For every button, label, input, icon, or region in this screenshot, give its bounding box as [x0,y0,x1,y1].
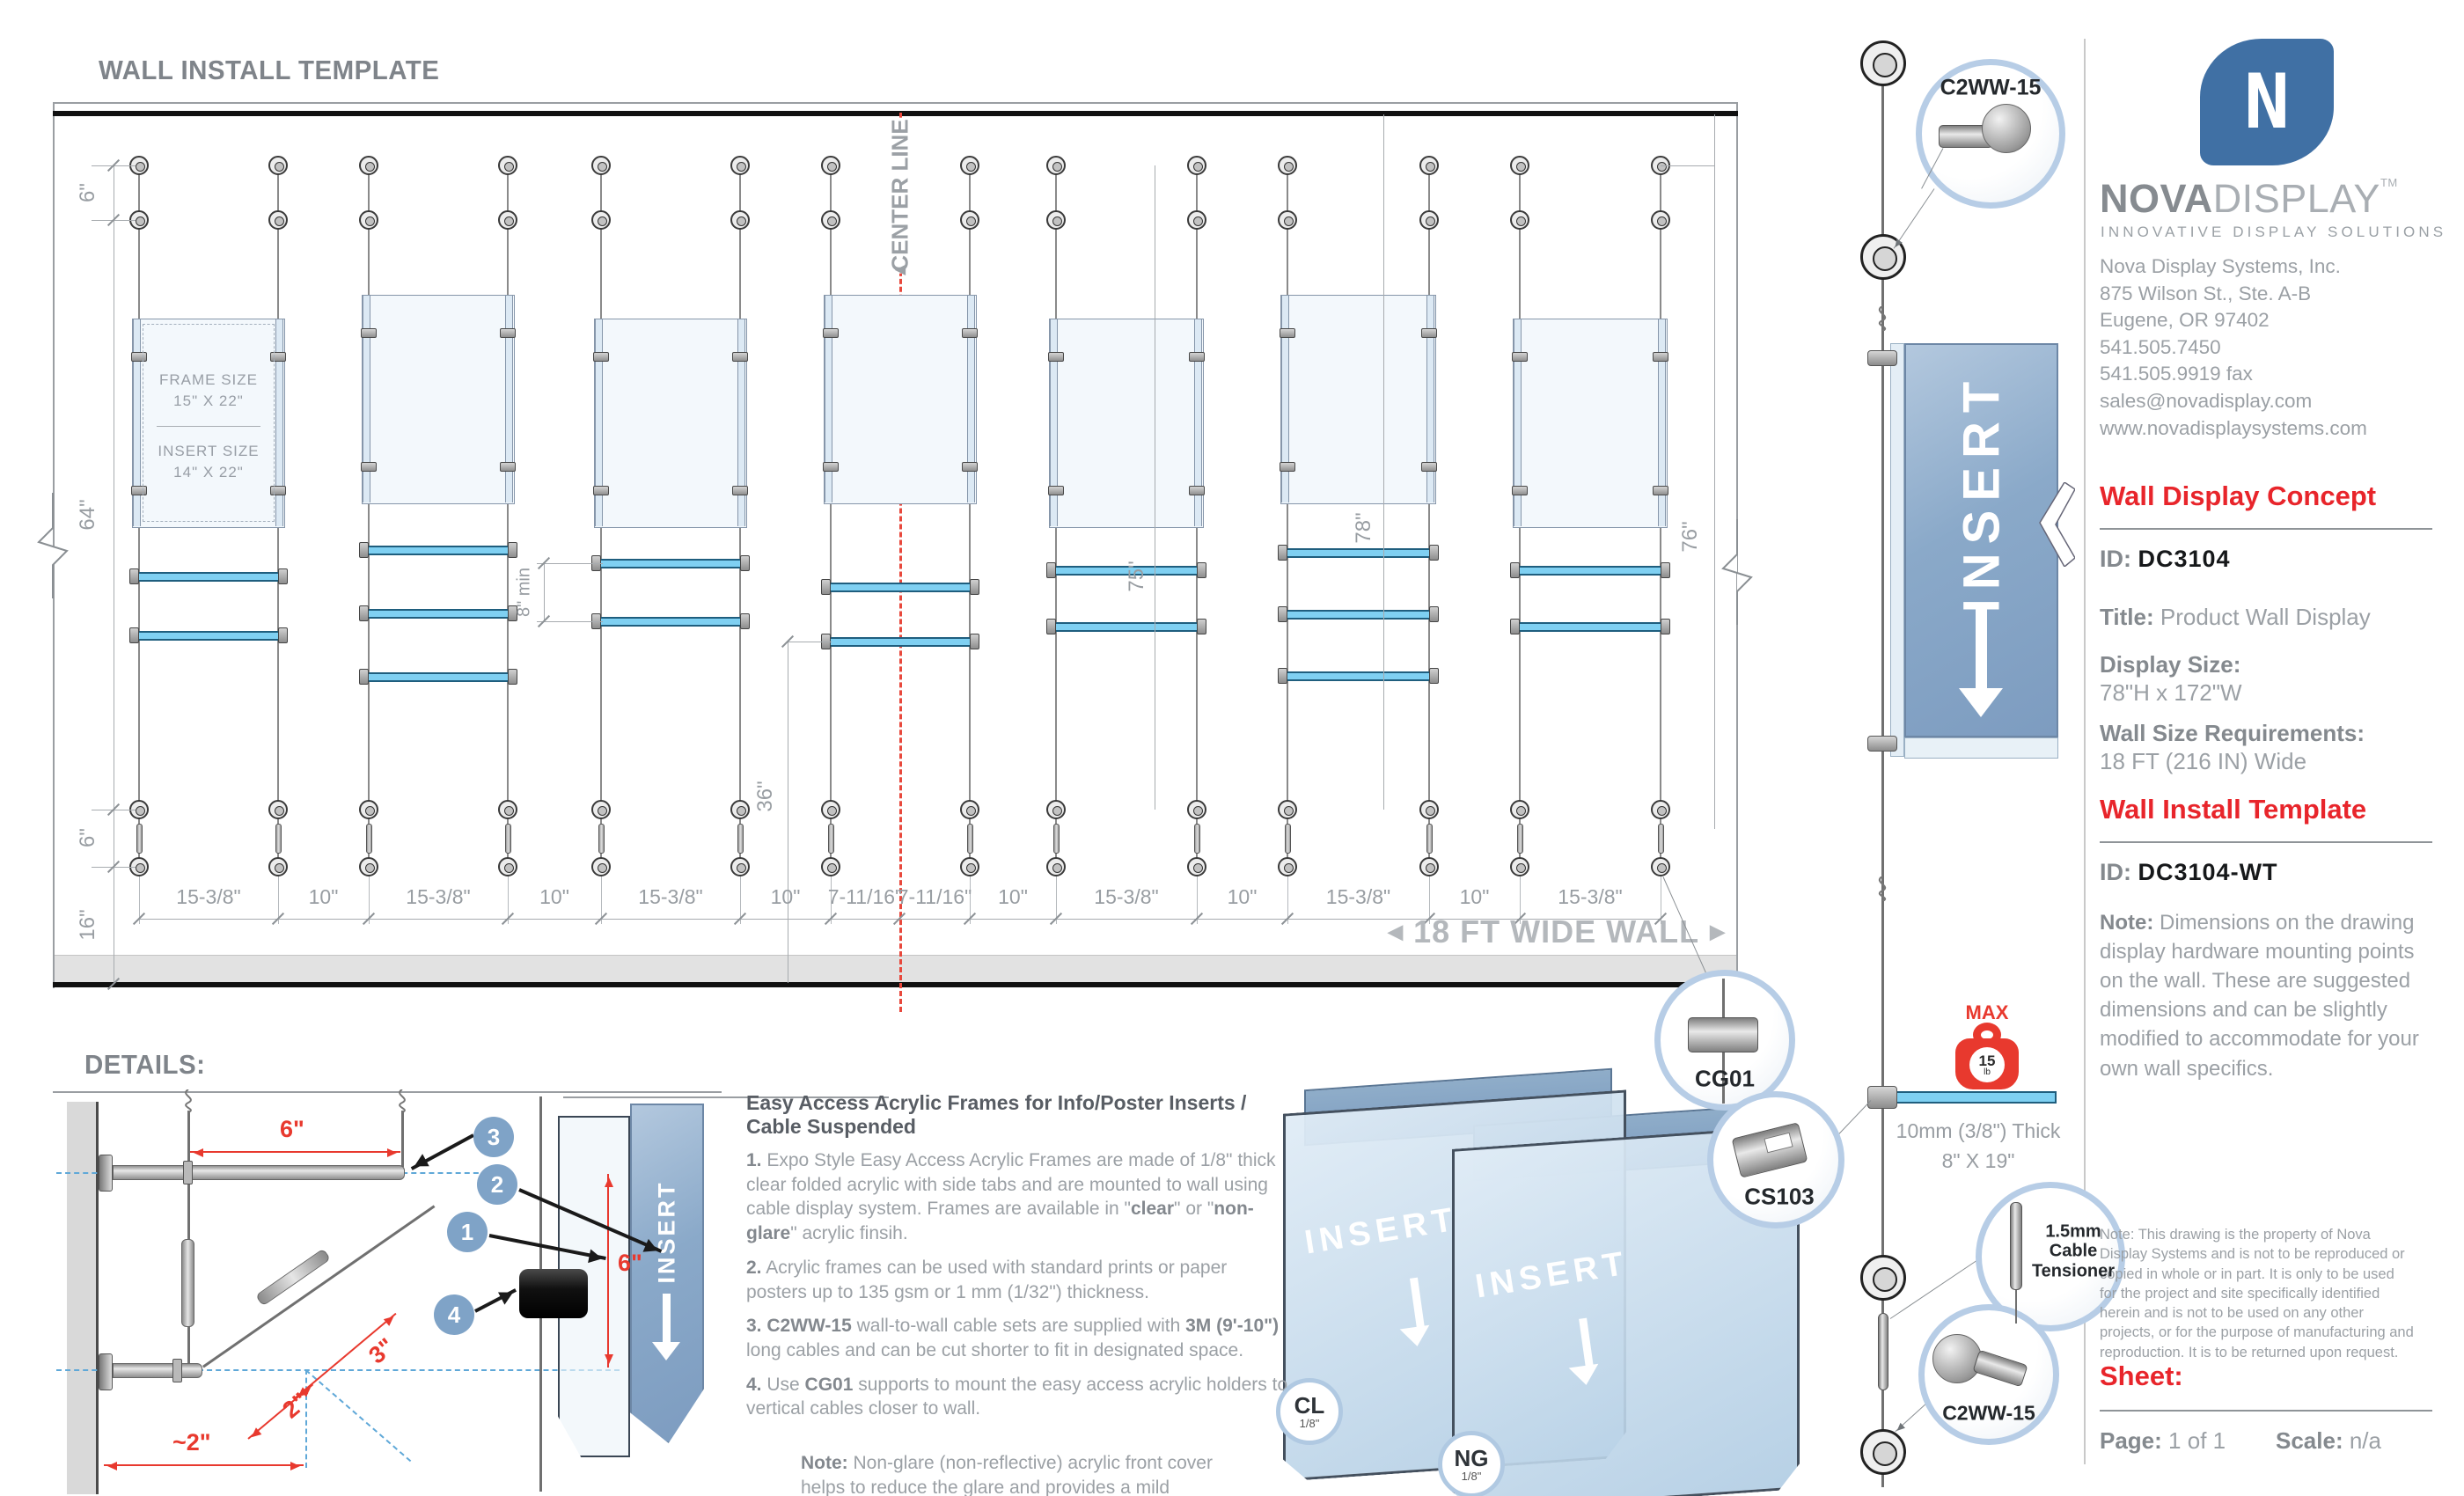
mount-anchor [821,210,840,230]
dim-connector [1661,165,1714,166]
mount-anchor [1187,210,1206,230]
break-mark-icon [37,493,69,598]
cable-tensioner-rod [828,824,834,854]
hanging-cable [368,165,370,869]
mount-anchor [960,800,979,819]
display-shelf [1516,566,1664,576]
shelf-end-cap [278,627,288,643]
shelf-end-cap [1278,668,1287,684]
dim-label: 8" min [515,568,535,617]
brand-name: NOVADISPLAYTM [2100,176,2398,222]
top-wall-stud [113,1165,405,1180]
note-item: 4. Use CG01 supports to mount the easy a… [746,1373,1292,1421]
bottom-dim-label: 10" [309,885,339,909]
display-frame [1049,319,1204,528]
down-arrow-icon [663,1294,671,1342]
shelf-end-cap [1429,545,1439,561]
bottom-dim-label: 15-3/8" [1326,885,1390,909]
mount-anchor [1187,156,1206,175]
cable-tensioner-rod [1426,824,1433,854]
wall-stud-flange [99,1353,113,1390]
frame-clip [1048,352,1064,362]
frame-clip [823,328,839,338]
mount-anchor [498,800,517,819]
mount-anchor [1046,210,1066,230]
page-indicator: Page: 1 of 1 [2100,1427,2226,1455]
dim-label: 16" [76,909,100,940]
display-shelf [598,559,744,568]
display-shelf [1516,622,1664,632]
panel-break-icon [2038,482,2075,567]
center-line-left-icon: ◀ [895,260,906,278]
bottom-dim-label: 10" [998,885,1028,909]
display-shelf [827,637,973,647]
mount-anchor [359,156,378,175]
dim-arrow [607,1174,609,1368]
shelf-end-cap [1510,562,1520,578]
display-shelf [827,583,973,592]
bottom-dim-label: 10" [1460,885,1490,909]
shelf-size-label: 8" X 19" [1942,1149,2015,1173]
hanging-cable [969,165,971,869]
dim-line [1155,165,1155,810]
cg01-hardware [1688,1017,1758,1052]
dim-extension [788,642,832,642]
shelf-end-cap [1278,545,1287,561]
shelf-end-cap [740,613,750,629]
cable-tensioner-rod [1285,824,1291,854]
dim-label: 78" [1352,512,1376,543]
mount-anchor [1046,156,1066,175]
c2ww15-flange [1982,104,2031,153]
callout-badge-1: 1 [447,1212,488,1252]
mount-anchor [730,857,750,876]
shelf-end-cap [359,669,369,685]
cable-tensioner-rod [1194,824,1200,854]
break-mark-icon [393,1089,411,1112]
dim-label: 64" [76,499,100,530]
shelf-thickness-label: 10mm (3/8") Thick [1896,1119,2061,1143]
shelf-end-cap [1661,619,1670,634]
wall-stud-flange [99,1155,113,1192]
logo-n-icon: N [2244,58,2290,146]
shelf-end-cap [129,568,139,584]
note-item: 1. Expo Style Easy Access Acrylic Frames… [746,1148,1292,1246]
wall-req-value: 18 FT (216 IN) Wide [2100,748,2306,775]
display-shelf [365,546,511,555]
shelf-end-cap [1046,619,1056,634]
shelf-end-cap [359,542,369,558]
callout-badge-3: 3 [473,1117,514,1157]
heading-rule [2100,528,2432,530]
dim-label: 6" [618,1250,642,1277]
mount-anchor [1278,156,1297,175]
mount-anchor [1419,156,1439,175]
cable-tensioner-rod [136,824,143,854]
note-item: 2. Acrylic frames can be used with stand… [746,1256,1292,1304]
frame-clip [593,486,609,495]
mount-anchor [359,800,378,819]
mount-anchor [498,210,517,230]
mount-anchor [591,800,611,819]
mount-anchor [1419,857,1439,876]
mount-anchor [1651,210,1670,230]
dim-line [1714,114,1715,829]
vertical-cable [401,1111,404,1167]
mount-anchor [730,800,750,819]
c2ww15-label: C2WW-15 [1940,76,2042,101]
insert-label: INSERT [654,1180,681,1283]
frame-clip [1189,486,1205,495]
nonglare-finish-badge: NG 1/8" [1438,1431,1505,1496]
bottom-dim-label: 15-3/8" [1558,885,1622,909]
mount-anchor [498,857,517,876]
dim-arrow [190,1151,400,1153]
frame-clip [1421,328,1437,338]
cable-clip [1867,350,1897,366]
brand-tagline: INNOVATIVE DISPLAY SOLUTIONS [2101,224,2446,241]
frame-size-label: FRAME SIZE15" X 22"INSERT SIZE14" X 22" [143,368,275,485]
frame-clip [1421,462,1437,472]
callout-badge-2: 2 [477,1164,517,1205]
display-size-value: 78"H x 172"W [2100,679,2242,707]
dim-extension [537,563,603,564]
panel-bottom-strip [1904,737,2058,759]
stud-collar [172,1359,182,1382]
hardware-cable [2015,1290,2017,1324]
dim-label: 76" [1678,521,1703,552]
shelf-end-cap [970,634,979,649]
shelf-end-cap [1197,619,1206,634]
bottom-dim-label: 15-3/8" [1094,885,1158,909]
concept-title: Title: Product Wall Display [2100,604,2371,631]
concept-id: ID: DC3104 [2100,546,2231,573]
shelf-end-cap [821,579,831,595]
frame-clip [1280,462,1295,472]
down-arrow-icon [1976,609,1987,690]
mount-anchor [268,800,288,819]
frame-clip [823,462,839,472]
frame-clip [1048,486,1064,495]
frame-clip [1512,352,1528,362]
right-arrow-icon: ▶ [1710,920,1725,943]
page-title: WALL INSTALL TEMPLATE [99,55,439,86]
dim-label: 6" [76,828,100,847]
shelf-end-cap [129,627,139,643]
frame-clip [962,462,978,472]
max-weight-label: MAX [1966,1001,2009,1024]
display-frame [824,295,977,504]
bottom-dim-label: 15-3/8" [406,885,470,909]
mount-anchor [1419,210,1439,230]
mount-anchor [359,210,378,230]
break-mark-icon [1873,876,1892,901]
dim-line [1383,114,1384,810]
wall-req-label: Wall Size Requirements: [2100,720,2365,747]
mount-anchor [960,210,979,230]
dim-arrow [104,1464,304,1466]
concept-heading: Wall Display Concept [2100,480,2376,512]
display-frame [1280,295,1436,504]
mount-anchor [359,857,378,876]
dim-label: 6" [76,183,100,202]
display-frame [1513,319,1668,528]
center-line-label: CENTER LINE [884,117,918,273]
left-arrow-icon: ◀ [1388,920,1403,943]
heading-rule [2100,1410,2432,1412]
scale-indicator: Scale: n/a [2276,1427,2381,1455]
mount-anchor [1278,210,1297,230]
nova-display-logo: N [2200,39,2334,165]
wall-anchor [1860,1255,1906,1301]
break-mark-icon [1873,306,1892,331]
tensioner-rod [1878,1313,1888,1390]
frame-clip [1653,352,1668,362]
shelf-end-cap [1429,668,1439,684]
hanging-cable [507,165,509,869]
cg01-support-cylinder [519,1269,588,1318]
install-note: Note: Dimensions on the drawing display … [2100,908,2438,1083]
acrylic-holder-rail [1890,343,1904,757]
bottom-dim-label: 15-3/8" [638,885,702,909]
weight-value-disc: 15 lb [1969,1047,2005,1082]
shelf-end-cap [740,555,750,571]
mount-anchor [730,210,750,230]
mount-anchor [821,156,840,175]
break-mark-icon [1721,519,1753,625]
shelf-end-cap [970,579,979,595]
display-shelf [1284,610,1433,620]
frame-clip [732,486,748,495]
frame-clip [593,352,609,362]
shelf-end-cap [1429,606,1439,622]
hanging-cable [1287,165,1288,869]
shelf-end-cap [1278,606,1287,622]
shelf-end-cap [278,568,288,584]
display-shelf [1052,622,1200,632]
insert-label: INSERT [1953,373,2012,613]
sheet-heading: Sheet: [2100,1360,2183,1392]
shelf-end-cap [1197,562,1206,578]
mount-anchor [498,156,517,175]
display-shelf [1284,671,1433,681]
install-heading: Wall Install Template [2100,794,2366,825]
dim-line [114,165,114,984]
cable-tensioner-rod [505,824,511,854]
mount-anchor [1651,800,1670,819]
frame-clip [361,462,377,472]
stud-collar [183,1161,193,1184]
shelf-end-cap [508,542,517,558]
cable-tensioner-rod [967,824,973,854]
cable-tensioner-rod [1517,824,1523,854]
mount-anchor [1510,800,1529,819]
down-arrow-icon [652,1342,680,1360]
bottom-dim-label: 7-11/16" [828,885,902,909]
shelf-end-cap [359,605,369,621]
frame-clip [1189,352,1205,362]
frame-clip [732,352,748,362]
mount-anchor [1651,857,1670,876]
display-shelf [365,609,511,619]
shelf-end-cap [1046,562,1056,578]
note-footnote: Note: Non-glare (non-reflective) acrylic… [746,1451,1239,1496]
frame-clip [500,328,516,338]
bottom-dim-label: 10" [1228,885,1258,909]
dim-extension [537,621,603,622]
c2ww15-label: C2WW-15 [1942,1402,2035,1426]
hanging-cable [1428,165,1430,869]
dim-line [788,642,788,983]
mount-anchor [1510,156,1529,175]
dim-label: 75" [1125,561,1149,591]
display-frame [594,319,747,528]
mount-anchor [1510,210,1529,230]
hanging-cable [830,165,832,869]
cs103-label: CS103 [1744,1184,1815,1211]
mount-anchor [1187,857,1206,876]
clear-finish-badge: CL 1/8" [1276,1378,1343,1445]
mount-anchor [960,857,979,876]
bottom-dim-label: 15-3/8" [176,885,240,909]
c2ww15-flange [1932,1334,1982,1383]
mount-anchor [1187,800,1206,819]
product-notes: Easy Access Acrylic Frames for Info/Post… [746,1091,1292,1496]
wide-wall-label: ◀ 18 FT WIDE WALL ▶ [1373,913,1725,950]
mount-anchor [1278,857,1297,876]
mount-anchor [268,210,288,230]
mount-anchor [821,800,840,819]
frame-clip [1280,328,1295,338]
shelf-clip [1867,1086,1897,1109]
frame-clip [1512,486,1528,495]
wall-anchor [1860,40,1906,86]
tensioner-hardware [2010,1202,2022,1290]
display-shelf [598,617,744,627]
dim-label: 6" [280,1116,304,1143]
glass-shelf [1894,1091,2057,1104]
mount-anchor [591,210,611,230]
shelf-end-cap [1661,562,1670,578]
bottom-dim-label: 10" [539,885,569,909]
display-shelf [365,672,511,682]
wall-anchor [1860,1429,1906,1475]
cable-tensioner-rod [598,824,605,854]
frame-clip [500,462,516,472]
down-arrow-icon [1569,1364,1602,1388]
mount-anchor [1046,857,1066,876]
mount-anchor [591,857,611,876]
cable-tensioner-rod [737,824,744,854]
wall-install-template-sheet: WALL INSTALL TEMPLATE ◀ 18 FT WIDE WALL … [0,0,2464,1496]
mount-anchor [1278,800,1297,819]
dim-label: ~2" [172,1429,211,1456]
bottom-dim-label: 10" [771,885,801,909]
mount-anchor [1046,800,1066,819]
dim-label: 36" [753,781,778,811]
legal-fine-print: Note: This drawing is the property of No… [2100,1225,2415,1362]
cable-tensioner-rod [1053,824,1060,854]
cable-turnbuckle [181,1239,194,1327]
dim-line [544,563,545,622]
details-title: DETAILS: [84,1049,205,1081]
company-address: Nova Display Systems, Inc. 875 Wilson St… [2100,253,2367,442]
frame-clip [962,328,978,338]
cable-tensioner-rod [366,824,372,854]
display-shelf [136,631,282,641]
cable-clip [1867,736,1897,752]
mount-anchor [268,857,288,876]
callout-badge-4: 4 [434,1294,474,1335]
heading-rule [2100,841,2432,843]
mount-anchor [821,857,840,876]
cable-tensioner-rod [1658,824,1664,854]
frame-clip [361,328,377,338]
mount-anchor [268,156,288,175]
shelf-end-cap [1510,619,1520,634]
mount-anchor [1419,800,1439,819]
mount-anchor [591,156,611,175]
bottom-wall-stud [113,1363,202,1378]
down-arrow-icon [1959,688,2003,717]
cg01-label: CG01 [1695,1066,1755,1093]
tensioner-label: 1.5mm Cable Tensioner [2032,1221,2116,1280]
shelf-end-cap [508,669,517,685]
bottom-dim-label: 7-11/16" [898,885,972,909]
display-frame [362,295,515,504]
notes-heading: Easy Access Acrylic Frames for Info/Post… [746,1091,1292,1139]
mount-anchor [960,156,979,175]
install-id: ID: DC3104-WT [2100,859,2278,886]
cable-tensioner-rod [275,824,282,854]
down-arrow-icon [1400,1325,1433,1349]
display-size-label: Display Size: [2100,651,2240,678]
note-item: 3. C2WW-15 wall-to-wall cable sets are s… [746,1314,1292,1362]
mount-anchor [730,156,750,175]
display-shelf [1284,548,1433,558]
display-shelf [136,572,282,582]
break-mark-icon [180,1089,197,1112]
frame-clip [1653,486,1668,495]
mount-anchor [1510,857,1529,876]
